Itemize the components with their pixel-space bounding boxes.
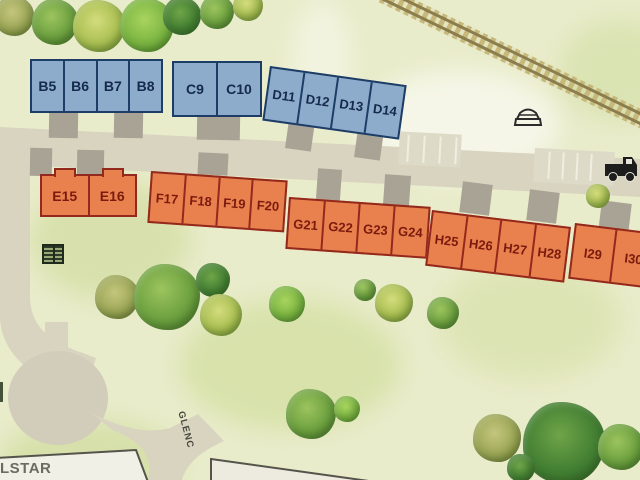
unit-C9[interactable]: C9 [174, 63, 216, 115]
tree-icon [286, 389, 336, 439]
utility-structure-icon [42, 244, 64, 264]
tree-icon [196, 263, 230, 297]
stall-line [406, 135, 409, 162]
stall-line [589, 154, 592, 181]
driveway-stub [49, 110, 78, 139]
tree-icon [32, 0, 78, 45]
unit-B7[interactable]: B7 [96, 61, 129, 111]
unit-D14[interactable]: D14 [364, 82, 405, 137]
unit-G21[interactable]: G21 [288, 199, 324, 249]
building-block-G: G21G22G23G24 [285, 197, 430, 259]
driveway-stub [526, 189, 560, 223]
unit-E15[interactable]: E15 [42, 176, 88, 215]
stall-line [547, 152, 550, 179]
tree-icon [354, 279, 376, 301]
building-block-I: I29I30 [568, 223, 640, 289]
tree-icon [73, 0, 125, 52]
unit-I29[interactable]: I29 [570, 225, 615, 281]
tree-icon [598, 424, 640, 470]
stall-line [422, 136, 425, 163]
unit-G22[interactable]: G22 [320, 201, 358, 251]
unit-C10[interactable]: C10 [216, 63, 260, 115]
parking-stalls [398, 131, 462, 167]
watermark-text: LSTAR [0, 460, 51, 477]
building-block-C: C9C10 [172, 61, 262, 117]
driveway-stub [197, 152, 228, 176]
tree-icon [334, 396, 360, 422]
driveway-stub [114, 110, 143, 139]
tree-icon [507, 454, 535, 480]
building-block-B: B5B6B7B8 [30, 59, 163, 113]
stall-line [575, 153, 578, 180]
driveway-stub [383, 174, 411, 207]
tree-icon [523, 402, 605, 480]
driveway-stub [316, 168, 342, 201]
unit-F18[interactable]: F18 [181, 175, 218, 225]
tree-icon [95, 275, 139, 319]
stall-line [438, 136, 441, 163]
unit-G23[interactable]: G23 [355, 204, 393, 254]
tree-icon [586, 184, 610, 208]
unit-F19[interactable]: F19 [215, 178, 252, 228]
tree-icon [269, 286, 305, 322]
unit-B8[interactable]: B8 [128, 61, 161, 111]
car-icon [512, 104, 544, 134]
map-edge-marker [0, 382, 3, 402]
building-block-F: F17F18F19F20 [147, 171, 287, 232]
driveway-stub [459, 181, 493, 215]
tree-icon [375, 284, 413, 322]
unit-G24[interactable]: G24 [390, 206, 428, 256]
unit-B6[interactable]: B6 [63, 61, 96, 111]
unit-F20[interactable]: F20 [249, 180, 286, 230]
tree-icon [134, 264, 200, 330]
unit-I30[interactable]: I30 [609, 230, 640, 287]
truck-icon [602, 152, 640, 186]
stall-line [454, 137, 457, 164]
unit-B5[interactable]: B5 [32, 61, 63, 111]
tree-icon [200, 294, 242, 336]
glenc-road [90, 412, 224, 480]
unit-F17[interactable]: F17 [150, 173, 185, 223]
unit-E16[interactable]: E16 [88, 176, 136, 215]
porch-bump [102, 168, 124, 177]
unit-H28[interactable]: H28 [528, 225, 569, 281]
site-plan-map: B5B6B7B8C9C10D11D12D13D14E15E16F17F18F19… [0, 0, 640, 480]
culdesac [8, 351, 108, 445]
building-block-E: E15E16 [40, 174, 137, 217]
driveway-stub [30, 148, 52, 176]
tree-icon [427, 297, 459, 329]
stall-line [561, 152, 564, 179]
porch-bump [54, 168, 76, 177]
